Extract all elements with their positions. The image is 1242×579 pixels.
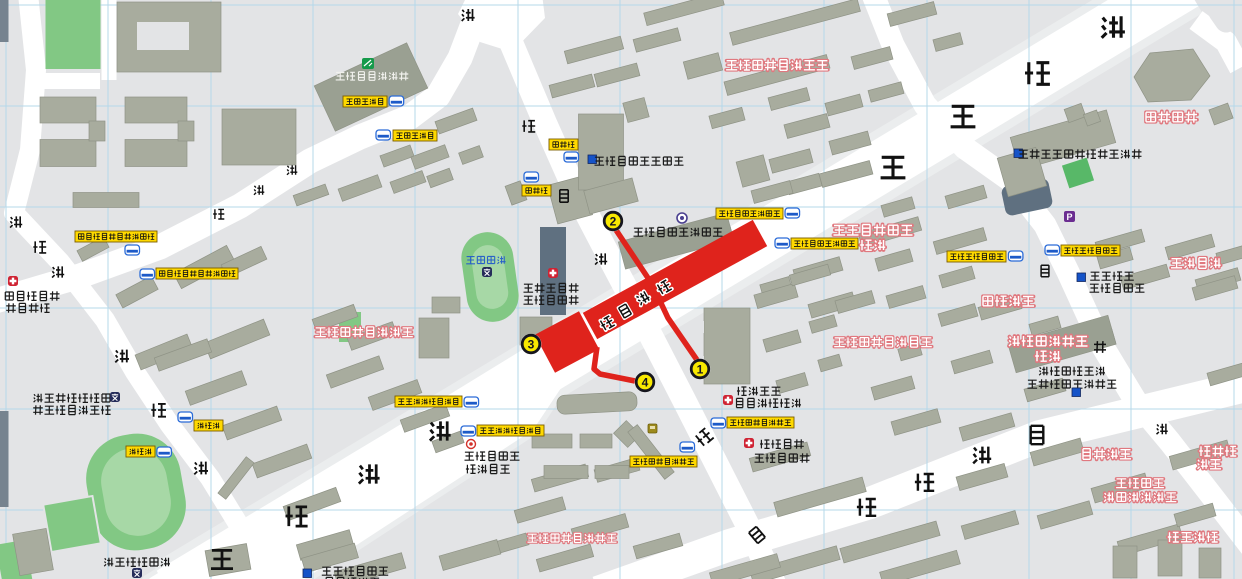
svg-text:1: 1 [697, 362, 704, 376]
svg-text:3: 3 [528, 337, 535, 351]
svg-text:2: 2 [610, 214, 617, 228]
svg-text:P: P [1066, 212, 1072, 222]
svg-text:4: 4 [642, 375, 649, 389]
